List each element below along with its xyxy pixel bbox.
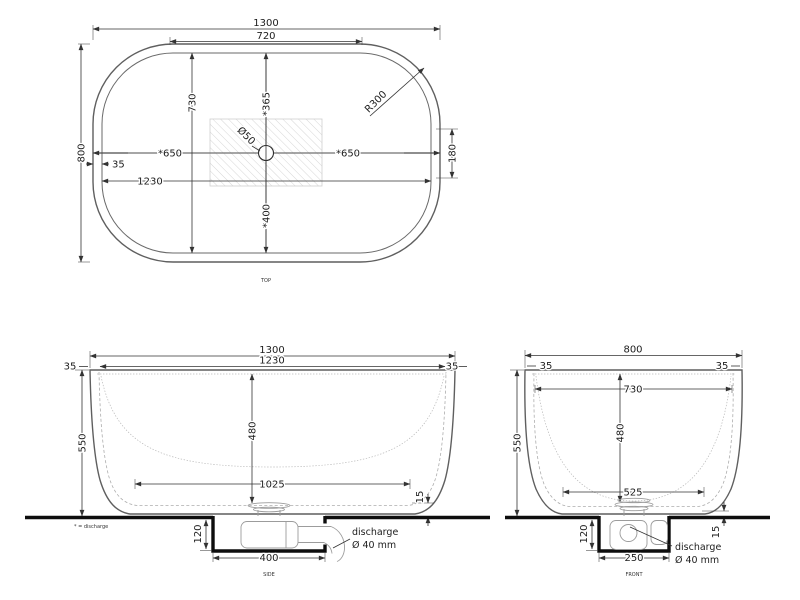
discharge-leader-line bbox=[333, 539, 350, 548]
dim-label-overall-length: 1300 bbox=[253, 18, 278, 29]
dim-label-pit-length: 400 bbox=[259, 553, 278, 564]
dim-label-overall-width: 800 bbox=[623, 345, 642, 356]
dim-label-inner-depth: 480 bbox=[616, 423, 627, 442]
dim-label-wall-right: 35 bbox=[446, 362, 459, 373]
dim-label-wall-right: 35 bbox=[716, 361, 729, 372]
view-caption-top: TOP bbox=[260, 278, 271, 284]
dim-label-pit-depth: 120 bbox=[193, 524, 204, 543]
dim-label-base-lip: 15 bbox=[415, 491, 426, 504]
trap-outlet bbox=[651, 521, 668, 545]
dim-label-wall-thickness: 35 bbox=[112, 160, 125, 171]
top-view: 1300 720 800 730 *365 *400 *650 *650 Ø50… bbox=[77, 18, 459, 284]
dim-label-pit-width: 250 bbox=[624, 553, 643, 564]
dim-label-wall-left: 35 bbox=[540, 361, 553, 372]
dim-label-inner-depth: 480 bbox=[248, 421, 259, 440]
dim-label-center-to-bottom: *400 bbox=[262, 204, 273, 228]
discharge-note-line1: discharge bbox=[675, 542, 721, 553]
dim-label-overall-length: 1300 bbox=[259, 345, 284, 356]
side-view: 1300 1230 35 35 550 480 1025 15 bbox=[25, 345, 490, 578]
dim-label-center-to-top: *365 bbox=[262, 92, 273, 116]
dim-label-height: 550 bbox=[78, 433, 89, 452]
discharge-note-line1: discharge bbox=[352, 527, 398, 538]
drain-flange-stem bbox=[258, 510, 280, 516]
discharge-footnote: * = discharge bbox=[74, 524, 108, 530]
technical-drawing-canvas: 1300 720 800 730 *365 *400 *650 *650 Ø50… bbox=[0, 0, 800, 600]
dim-label-inner-length: 1230 bbox=[259, 356, 284, 367]
dim-label-bottom-width: 525 bbox=[623, 488, 642, 499]
dim-label-inner-length: 1230 bbox=[137, 177, 162, 188]
view-caption-side: SIDE bbox=[263, 572, 275, 578]
dim-label-center-to-right: *650 bbox=[336, 149, 360, 160]
dim-label-overall-width: 800 bbox=[77, 143, 88, 162]
dim-label-inner-width: 730 bbox=[188, 93, 199, 112]
dim-label-top-straight: 720 bbox=[256, 31, 275, 42]
dim-label-center-to-left: *650 bbox=[158, 149, 182, 160]
dim-label-wall-left: 35 bbox=[64, 362, 77, 373]
dim-label-recess-height: 180 bbox=[448, 144, 459, 163]
drain-trap-front bbox=[610, 521, 668, 550]
tub-outline-side-view bbox=[90, 370, 455, 514]
discharge-note-line2: Ø 40 mm bbox=[352, 540, 396, 551]
bowl-end-hidden-curve bbox=[101, 376, 444, 467]
dim-label-inner-width: 730 bbox=[623, 385, 642, 396]
dim-label-bottom-length: 1025 bbox=[259, 480, 284, 491]
dim-label-height: 550 bbox=[513, 433, 524, 452]
discharge-note-line2: Ø 40 mm bbox=[675, 555, 719, 566]
dim-label-pit-depth: 120 bbox=[579, 524, 590, 543]
bathtub-technical-drawing: 1300 720 800 730 *365 *400 *650 *650 Ø50… bbox=[0, 0, 800, 600]
view-caption-front: FRONT bbox=[625, 572, 643, 578]
dim-label-base-lip: 15 bbox=[711, 526, 722, 539]
trap-body bbox=[241, 522, 298, 549]
front-view: 800 35 35 730 550 480 525 15 bbox=[505, 345, 770, 579]
